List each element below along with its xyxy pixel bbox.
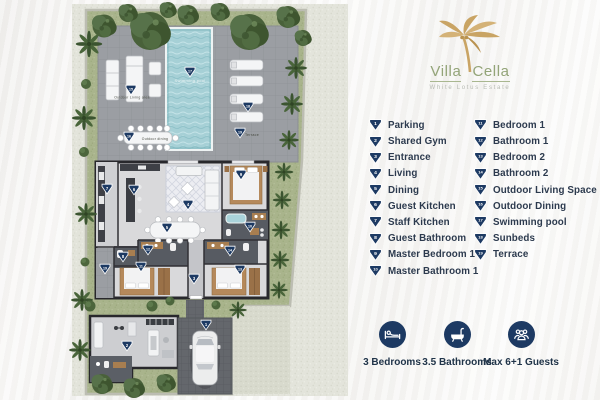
legend-item-label: Sunbeds (493, 233, 535, 244)
legend-item: 2Shared Gym (369, 135, 478, 148)
legend-item-label: Master Bathroom 1 (388, 266, 478, 277)
svg-text:9: 9 (374, 251, 377, 257)
bathtub-icon (444, 321, 471, 348)
svg-text:18: 18 (246, 105, 250, 109)
legend-column-1: 1Parking2Shared Gym3Entrance4Living5Dini… (369, 119, 478, 281)
svg-text:11: 11 (478, 121, 483, 126)
svg-text:16: 16 (478, 202, 483, 207)
swimming-pool (166, 28, 212, 150)
bed-icon (379, 321, 406, 348)
legend-item-label: Bathroom 2 (493, 168, 548, 179)
svg-text:10: 10 (248, 225, 252, 229)
brand-word-cella: Cella (472, 63, 509, 82)
gravel-yard (232, 306, 290, 394)
legend-item-label: Dining (388, 185, 419, 196)
legend-pin-icon: 3 (369, 152, 382, 164)
svg-text:15: 15 (129, 88, 133, 92)
svg-text:17: 17 (478, 218, 483, 223)
legend-item: 12Bathroom 1 (474, 135, 597, 148)
legend-pin-icon: 4 (369, 168, 382, 180)
legend-pin-icon: 18 (474, 233, 487, 245)
svg-text:19: 19 (238, 131, 242, 135)
legend-item-label: Bedroom 1 (493, 120, 545, 131)
legend-pin-icon: 15 (474, 184, 487, 196)
brand-word-villa: Villa (430, 63, 461, 82)
plan-label: Outdoor Living area (114, 96, 149, 100)
svg-text:13: 13 (478, 153, 483, 158)
legend-item-label: Staff Kitchen (388, 217, 450, 228)
floorplan: Swimming poolOutdoor Living areaOutdoor … (0, 0, 352, 400)
svg-text:4: 4 (374, 170, 377, 176)
svg-text:12: 12 (146, 248, 150, 252)
legend-item-label: Outdoor Living Space (493, 185, 597, 196)
legend-item-label: Bedroom 2 (493, 152, 545, 163)
legend-pin-icon: 12 (474, 136, 487, 148)
stat-guests-label: Max 6+1 Guests (483, 357, 559, 368)
legend-item-label: Bathroom 1 (493, 136, 548, 147)
legend-item: 17Swimming pool (474, 216, 597, 229)
legend-item: 13Bedroom 2 (474, 151, 597, 164)
legend-item: 1Parking (369, 119, 478, 132)
legend-pin-icon: 5 (369, 184, 382, 196)
legend-pin-icon: 2 (369, 136, 382, 148)
legend-pin-icon: 17 (474, 216, 487, 228)
svg-text:5: 5 (374, 186, 377, 192)
legend-item: 11Bedroom 1 (474, 119, 597, 132)
main-villa-building (96, 161, 268, 300)
legend-item: 15Outdoor Living Space (474, 184, 597, 197)
svg-text:19: 19 (478, 251, 483, 256)
legend-item-label: Outdoor Dining (493, 201, 566, 212)
stat-guests: Max 6+1 Guests (472, 321, 570, 368)
legend-pin-icon: 16 (474, 200, 487, 212)
svg-text:8: 8 (374, 235, 377, 241)
stat-bedrooms-label: 3 Bedrooms (363, 357, 421, 368)
svg-text:17: 17 (188, 70, 192, 74)
plan-label: Swimming pool (174, 78, 205, 83)
legend-item: 14Bathroom 2 (474, 168, 597, 181)
legend-item: 19Terrace (474, 249, 597, 262)
legend-item: 8Guest Bathroom (369, 232, 478, 245)
legend-item-label: Entrance (388, 152, 431, 163)
svg-text:16: 16 (127, 135, 131, 139)
svg-text:15: 15 (478, 186, 483, 191)
legend-pin-icon: 10 (369, 265, 382, 277)
plan-label: Outdoor dining (142, 137, 168, 141)
legend-pin-icon: 19 (474, 249, 487, 261)
svg-text:13: 13 (238, 268, 242, 272)
legend-pin-icon: 9 (369, 249, 382, 261)
legend-pin-icon: 7 (369, 216, 382, 228)
brand-title: Villa Cella (430, 63, 509, 82)
villa-floorplan-infographic: Swimming poolOutdoor Living areaOutdoor … (0, 0, 600, 400)
car (190, 331, 221, 389)
legend-item: 10Master Bathroom 1 (369, 265, 478, 278)
svg-text:14: 14 (228, 249, 232, 253)
legend-item-label: Terrace (493, 249, 528, 260)
svg-text:14: 14 (478, 170, 483, 175)
legend-item: 9Master Bedroom 1 (369, 249, 478, 262)
svg-text:6: 6 (374, 202, 377, 208)
brand-logo: Villa Cella White Lotus Estate (403, 14, 537, 91)
legend-item-label: Living (388, 168, 417, 179)
guests-icon (508, 321, 535, 348)
legend-pin-icon: 6 (369, 200, 382, 212)
legend-item: 6Guest Kitchen (369, 200, 478, 213)
legend-item-label: Swimming pool (493, 217, 567, 228)
svg-text:12: 12 (478, 137, 483, 142)
legend-item: 5Dining (369, 184, 478, 197)
legend-item-label: Guest Bathroom (388, 233, 466, 244)
svg-text:7: 7 (374, 219, 377, 225)
svg-text:18: 18 (478, 234, 483, 239)
legend-item-label: Master Bedroom 1 (388, 249, 475, 260)
plan-label: Terrace (245, 133, 259, 137)
legend-pin-icon: 13 (474, 152, 487, 164)
svg-text:3: 3 (374, 154, 377, 160)
legend-pin-icon: 8 (369, 233, 382, 245)
legend-item-label: Shared Gym (388, 136, 447, 147)
legend-item: 3Entrance (369, 151, 478, 164)
svg-text:11: 11 (139, 265, 143, 269)
legend-pin-icon: 11 (474, 119, 487, 131)
legend-pin-icon: 1 (369, 119, 382, 131)
legend-column-2: 11Bedroom 112Bathroom 113Bedroom 214Bath… (474, 119, 597, 265)
svg-text:10: 10 (373, 267, 378, 272)
svg-text:19: 19 (103, 267, 107, 271)
legend-pin-icon: 14 (474, 168, 487, 180)
svg-text:1: 1 (374, 121, 377, 127)
svg-text:2: 2 (374, 138, 377, 144)
legend-item-label: Parking (388, 120, 425, 131)
legend-item: 7Staff Kitchen (369, 216, 478, 229)
brand-tagline: White Lotus Estate (430, 85, 511, 91)
legend-item: 4Living (369, 168, 478, 181)
legend-item: 18Sunbeds (474, 232, 597, 245)
legend-item: 16Outdoor Dining (474, 200, 597, 213)
legend-item-label: Guest Kitchen (388, 201, 456, 212)
